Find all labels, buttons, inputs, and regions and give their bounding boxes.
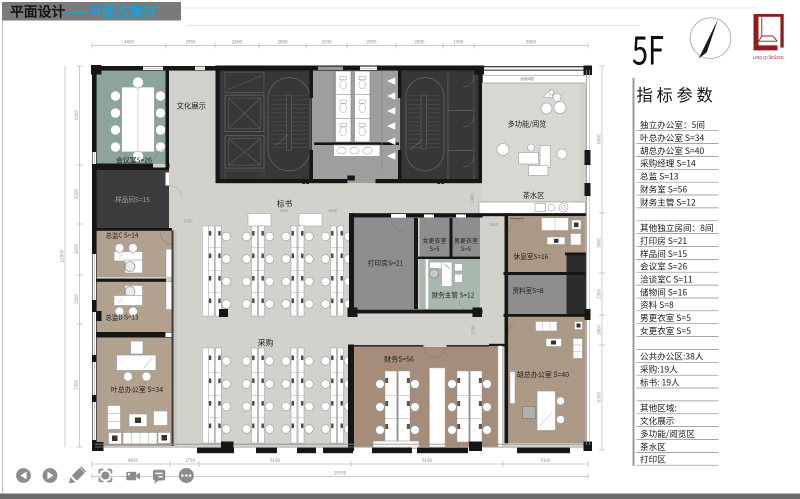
svg-text:——平面方案5F: ——平面方案5F: [65, 1, 159, 21]
svg-text:文化展示: 文化展示: [640, 415, 675, 427]
svg-text:1750: 1750: [185, 458, 195, 464]
svg-text:样品间 S=15: 样品间 S=15: [640, 248, 687, 260]
svg-text:2950: 2950: [74, 294, 80, 304]
svg-text:多功能/阅览区: 多功能/阅览区: [640, 428, 695, 440]
svg-text:平面设计: 平面设计: [10, 1, 65, 21]
svg-text:9100: 9100: [422, 458, 432, 464]
svg-text:储物间 S=16: 储物间 S=16: [640, 286, 687, 298]
svg-text:多功能/阅览: 多功能/阅览: [508, 120, 547, 130]
svg-text:2950: 2950: [186, 40, 196, 46]
svg-text:打印房 S=21: 打印房 S=21: [640, 235, 687, 247]
svg-text:女更衣室 S=5: 女更衣室 S=5: [640, 325, 691, 337]
svg-text:3050: 3050: [74, 244, 80, 254]
svg-text:指标参数: 指标参数: [637, 82, 717, 106]
svg-text:财务主管 S=12: 财务主管 S=12: [640, 196, 696, 208]
svg-text:阅读休憩: 阅读休憩: [520, 76, 534, 81]
svg-text:采购经理 S=14: 采购经理 S=14: [640, 158, 696, 170]
svg-text:叶总办公室 S=34: 叶总办公室 S=34: [640, 132, 705, 144]
svg-text:休息室S=16: 休息室S=16: [514, 251, 549, 261]
svg-text:胡总办公室 S=40: 胡总办公室 S=40: [640, 145, 705, 157]
svg-text:1700: 1700: [471, 325, 477, 335]
svg-text:会议室S=26: 会议室S=26: [116, 154, 152, 164]
svg-text:1800: 1800: [470, 193, 476, 203]
svg-text:财务S=56: 财务S=56: [384, 355, 414, 365]
svg-text:茶水区: 茶水区: [523, 191, 545, 201]
svg-text:洽谈室C S=11: 洽谈室C S=11: [640, 274, 693, 286]
svg-text:茶水区: 茶水区: [640, 441, 666, 453]
svg-text:资料 S=8: 资料 S=8: [640, 299, 674, 311]
svg-text:1900: 1900: [454, 40, 464, 46]
svg-text:22900: 22900: [60, 249, 66, 262]
svg-text:其他独立房间：8间: 其他独立房间：8间: [640, 222, 714, 234]
svg-text:文化展示: 文化展示: [177, 101, 207, 112]
svg-text:7350: 7350: [74, 380, 80, 390]
svg-text:财务主管 S=12: 财务主管 S=12: [432, 290, 475, 300]
svg-text:2500: 2500: [597, 289, 603, 299]
svg-text:公共办公区:38人: 公共办公区:38人: [640, 351, 704, 363]
svg-text:标书: 19人: 标书: 19人: [640, 376, 680, 388]
svg-text:打印房S=21: 打印房S=21: [368, 258, 404, 268]
svg-text:5950: 5950: [74, 110, 80, 120]
svg-text:2800: 2800: [415, 40, 425, 46]
svg-text:3600: 3600: [597, 238, 603, 248]
svg-text:S=5: S=5: [461, 244, 471, 253]
svg-text:资料室S=8: 资料室S=8: [512, 285, 543, 295]
svg-text:2900: 2900: [367, 40, 377, 46]
svg-text:1700: 1700: [279, 208, 289, 214]
svg-text:8800: 8800: [597, 134, 603, 144]
svg-text:2600: 2600: [232, 40, 242, 46]
svg-text:6300: 6300: [597, 392, 603, 402]
svg-text:男更衣室 S=5: 男更衣室 S=5: [640, 312, 691, 324]
svg-text:财务室 S=56: 财务室 S=56: [640, 183, 687, 195]
svg-text:打印区: 打印区: [640, 454, 666, 466]
svg-text:1500: 1500: [328, 208, 338, 214]
svg-text:4450: 4450: [124, 40, 134, 46]
svg-text:5100: 5100: [541, 458, 551, 464]
svg-text:采购: 采购: [258, 338, 274, 349]
svg-text:总监D S=13: 总监D S=13: [105, 313, 139, 322]
svg-text:总监 S=13: 总监 S=13: [640, 171, 679, 183]
svg-text:其他区域:: 其他区域:: [640, 402, 677, 414]
svg-text:1650: 1650: [184, 219, 194, 225]
svg-text:1800: 1800: [597, 325, 603, 335]
svg-text:胡总办公室 S=40: 胡总办公室 S=40: [517, 370, 570, 380]
svg-text:采购:19人: 采购:19人: [640, 364, 678, 376]
svg-text:29700: 29700: [334, 471, 347, 477]
svg-text:6800: 6800: [526, 40, 536, 46]
svg-text:9100: 9100: [270, 458, 280, 464]
svg-text:会议室 S=26: 会议室 S=26: [640, 261, 687, 273]
svg-text:样品间S=15: 样品间S=15: [115, 194, 150, 204]
svg-text:1500: 1500: [489, 222, 499, 228]
svg-text:4650: 4650: [128, 458, 138, 464]
svg-text:5F: 5F: [632, 21, 664, 77]
svg-text:LING QI DESIGN: LING QI DESIGN: [753, 55, 784, 61]
svg-text:S=5: S=5: [429, 244, 439, 253]
svg-text:2500: 2500: [322, 40, 332, 46]
svg-text:2800: 2800: [278, 40, 288, 46]
svg-text:叶总办公室 S=34: 叶总办公室 S=34: [111, 385, 164, 395]
svg-text:3500: 3500: [74, 189, 80, 199]
svg-text:总监C S=14: 总监C S=14: [106, 231, 139, 240]
svg-text:独立办公室：5间: 独立办公室：5间: [640, 119, 705, 131]
